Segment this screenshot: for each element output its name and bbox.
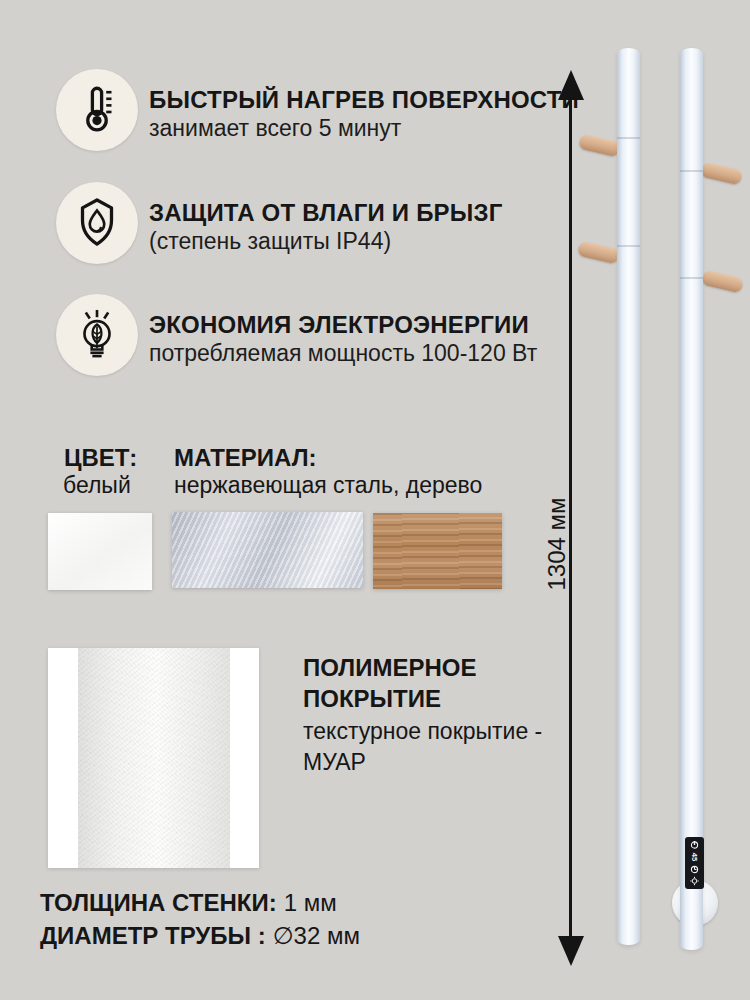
white-texture-swatch <box>48 513 152 590</box>
crossbar-top <box>636 348 684 362</box>
color-label: ЦВЕТ: <box>64 444 137 471</box>
stainless-steel-swatch <box>172 512 363 588</box>
tube-joint <box>617 137 640 139</box>
textured-tube-closeup <box>78 648 230 868</box>
coating-texture-photo <box>48 648 259 868</box>
wooden-peg <box>577 241 620 265</box>
feature-fast-heating: БЫСТРЫЙ НАГРЕВ ПОВЕРХНОСТИ занимает всег… <box>56 69 579 151</box>
color-value: белый <box>63 472 131 499</box>
arrow-up-icon <box>558 70 584 100</box>
tube-joint <box>680 277 703 279</box>
material-value: нержавеющая сталь, дерево <box>174 472 482 499</box>
feature-subtitle: занимает всего 5 минут <box>149 114 579 142</box>
coating-title: ПОЛИМЕРНОЕ ПОКРЫТИЕ <box>303 652 476 714</box>
spec-wall-thickness: ТОЛЩИНА СТЕНКИ:1 мм <box>40 889 337 917</box>
eco-bulb-icon <box>56 294 138 376</box>
feature-moisture-protection: ЗАЩИТА ОТ ВЛАГИ И БРЫЗГ (степень защиты … <box>56 182 503 264</box>
feature-title: БЫСТРЫЙ НАГРЕВ ПОВЕРХНОСТИ <box>149 86 579 114</box>
feature-title: ЭКОНОМИЯ ЭЛЕКТРОЭНЕРГИИ <box>149 311 537 339</box>
tube-joint <box>680 170 703 172</box>
feature-subtitle: (степень защиты IP44) <box>149 227 503 255</box>
shield-drop-icon <box>56 182 138 264</box>
control-panel: 45 <box>685 837 704 893</box>
feature-energy-saving: ЭКОНОМИЯ ЭЛЕКТРОЭНЕРГИИ потребляемая мощ… <box>56 294 537 376</box>
tube-joint <box>617 245 640 247</box>
wooden-peg <box>578 134 621 158</box>
material-label: МАТЕРИАЛ: <box>174 444 317 471</box>
crossbar-bottom <box>636 812 684 826</box>
height-dimension-label: 1304 мм <box>544 488 570 601</box>
product-infographic: БЫСТРЫЙ НАГРЕВ ПОВЕРХНОСТИ занимает всег… <box>0 0 750 1000</box>
wooden-peg <box>701 270 744 294</box>
feature-title: ЗАЩИТА ОТ ВЛАГИ И БРЫЗГ <box>149 199 503 227</box>
spec-tube-diameter: ДИАМЕТР ТРУБЫ :∅32 мм <box>40 922 360 950</box>
feature-subtitle: потребляемая мощность 100-120 Вт <box>149 339 537 367</box>
towel-rail-right-tube <box>680 48 703 950</box>
temperature-readout: 45 <box>690 853 699 861</box>
towel-rail-left-tube <box>617 48 640 945</box>
coating-description: текстурное покрытие - МУАР <box>303 716 573 778</box>
arrow-down-icon <box>558 936 584 966</box>
wood-swatch <box>373 513 502 589</box>
thermometer-icon <box>56 69 138 151</box>
wooden-peg <box>700 162 743 186</box>
